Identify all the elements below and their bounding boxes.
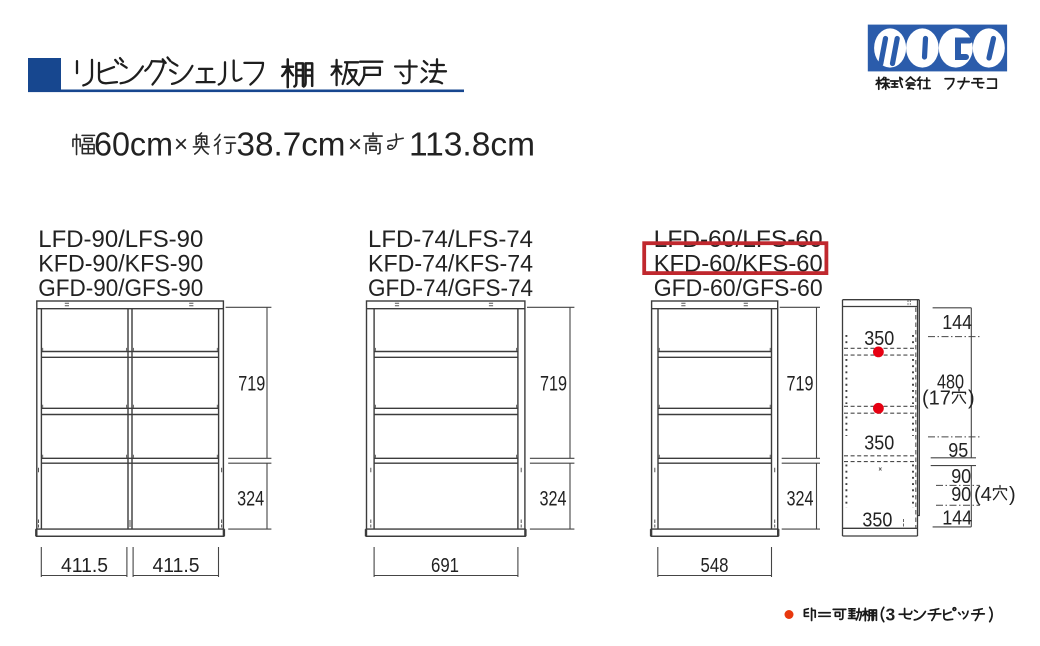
svg-text:): ) <box>1009 484 1016 506</box>
svg-text:411.5: 411.5 <box>153 555 200 577</box>
svg-text:GFD-60/GFS-60: GFD-60/GFS-60 <box>654 275 823 302</box>
svg-text:90: 90 <box>951 484 971 506</box>
svg-text:LFD-60/LFS-60: LFD-60/LFS-60 <box>654 226 823 253</box>
svg-text:LFD-90/LFS-90: LFD-90/LFS-90 <box>38 226 203 253</box>
svg-text:95: 95 <box>948 440 968 462</box>
svg-text:719: 719 <box>787 373 814 396</box>
svg-text:691: 691 <box>431 555 459 577</box>
svg-text:KFD-74/KFS-74: KFD-74/KFS-74 <box>368 251 533 278</box>
svg-text:GFD-74/GFS-74: GFD-74/GFS-74 <box>368 275 533 302</box>
svg-text:324: 324 <box>237 488 264 511</box>
svg-text:719: 719 <box>238 373 265 396</box>
svg-text:38.7cm: 38.7cm <box>237 126 346 163</box>
svg-text:548: 548 <box>701 555 729 577</box>
svg-text:350: 350 <box>862 510 892 532</box>
svg-text:(17: (17 <box>922 388 951 410</box>
svg-text:324: 324 <box>787 488 814 511</box>
svg-text:(4: (4 <box>974 484 992 506</box>
svg-text:GFD-90/GFS-90: GFD-90/GFS-90 <box>38 275 203 302</box>
svg-text:): ) <box>968 388 975 410</box>
svg-text:350: 350 <box>864 433 894 455</box>
svg-text:3: 3 <box>886 605 896 625</box>
svg-text:719: 719 <box>540 373 567 396</box>
svg-text:×: × <box>348 131 362 158</box>
svg-text:113.8cm: 113.8cm <box>409 126 535 163</box>
svg-text:144: 144 <box>942 312 972 334</box>
svg-text:KFD-90/KFS-90: KFD-90/KFS-90 <box>38 251 203 278</box>
svg-text:324: 324 <box>540 488 567 511</box>
svg-text:×: × <box>174 131 188 158</box>
svg-text:LFD-74/LFS-74: LFD-74/LFS-74 <box>368 226 533 253</box>
svg-text:144: 144 <box>942 508 972 530</box>
svg-text:60cm: 60cm <box>94 126 173 163</box>
svg-text:411.5: 411.5 <box>61 555 108 577</box>
